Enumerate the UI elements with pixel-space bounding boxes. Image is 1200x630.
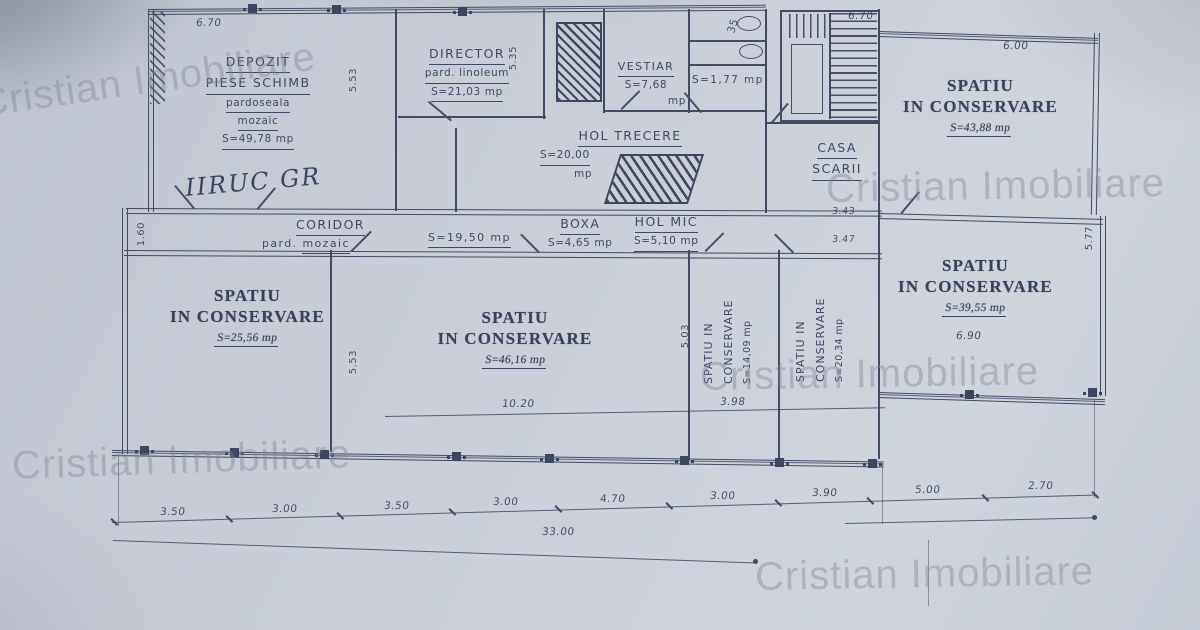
wall-wc-divider2 — [690, 64, 767, 66]
wall-left-room-right — [330, 250, 332, 452]
dim-value: 3.00 — [709, 490, 736, 502]
dim-total-value: 33.00 — [541, 526, 575, 538]
wall-vestiar-left — [603, 9, 605, 113]
door-swing — [520, 234, 540, 254]
dim-value: 6.70 — [195, 17, 222, 29]
dim-value: 3.50 — [159, 506, 186, 518]
dim-value: 3.47 — [831, 234, 856, 245]
watermark: Cristian Imobiliare — [11, 432, 351, 489]
dim-endpoint — [1092, 515, 1097, 520]
dim-value: 3.00 — [271, 503, 298, 515]
room-label-conservare-top-right: SPATIU IN CONSERVARE S=43,88 mp — [893, 76, 1068, 137]
extension-line — [882, 464, 883, 524]
wall-narrow1-left — [688, 250, 690, 460]
extension-line — [1094, 400, 1095, 498]
column — [680, 456, 689, 465]
dim-value: 5.00 — [914, 484, 941, 496]
column — [775, 458, 784, 467]
wall-director-right — [543, 9, 545, 119]
room-label-conservare-left: SPATIU IN CONSERVARE S=25,56 mp — [160, 286, 335, 347]
wall-stairs-bottom — [767, 122, 880, 124]
dim-value-vertical: 5.35 — [508, 46, 519, 70]
dim-value: 6.90 — [955, 330, 982, 342]
wall-rightblock-divider — [878, 213, 1103, 225]
stair-flight — [789, 14, 829, 38]
wall-director-bottom — [398, 116, 546, 118]
dim-value-vertical: 1.60 — [136, 222, 147, 246]
watermark: Cristian Imobiliare — [755, 549, 1095, 600]
dim-value: 6.00 — [1002, 40, 1029, 52]
room-label-hol-trecere: HOL TRECERE S=20,00 mp — [540, 126, 720, 182]
room-label-wc: S=1,77 mp — [692, 72, 764, 88]
watermark: Cristian Imobiliare — [700, 349, 1040, 400]
stair-landing — [791, 44, 823, 114]
column — [545, 454, 554, 463]
room-label-vestiar: VESTIAR S=7,68 mp — [606, 58, 686, 110]
dim-value: 35 — [725, 17, 741, 34]
column — [452, 452, 461, 461]
room-label-boxa: BOXA S=4,65 mp — [548, 214, 612, 252]
room-label-conservare-right: SPATIU IN CONSERVARE S=39,55 mp — [888, 256, 1063, 317]
room-label-hol-mic: HOL MIC S=5,10 mp — [634, 212, 698, 252]
dim-value: 3.90 — [811, 487, 838, 499]
column — [458, 7, 467, 16]
wall-wc-divider1 — [690, 40, 767, 42]
outer-wall-top — [148, 5, 766, 15]
stair-steps — [829, 13, 877, 119]
dim-value: 6.70 — [847, 10, 874, 22]
dim-value: 3.00 — [492, 496, 519, 508]
wall-corridor-bottom — [124, 250, 882, 259]
wall-depozit-right — [395, 9, 397, 211]
outer-wall-left-lower — [122, 208, 128, 454]
toilet-icon — [737, 16, 761, 31]
door-swing — [705, 232, 725, 252]
dim-value-vertical: 5.77 — [1084, 226, 1095, 250]
room-label-coridor-floor: pard. mozaic — [262, 235, 350, 254]
elevator-shaft — [556, 22, 602, 102]
dim-value-vertical: 5.03 — [680, 324, 691, 348]
door-swing — [428, 101, 452, 122]
outer-wall-right-lower — [1100, 216, 1106, 396]
wall-corridor-top — [126, 208, 882, 217]
column — [1088, 388, 1097, 397]
dim-value: 3.50 — [383, 500, 410, 512]
column — [868, 459, 877, 468]
room-label-coridor-area: S=19,50 mp — [428, 229, 511, 248]
dim-value-vertical: 5.53 — [348, 350, 359, 374]
dimension-interior-line — [385, 407, 885, 417]
column — [248, 4, 257, 13]
column — [332, 5, 341, 14]
dim-value: 4.70 — [599, 493, 626, 505]
dimension-total-line — [113, 540, 758, 564]
dim-value: 2.70 — [1027, 480, 1054, 492]
room-label-coridor: CORIDOR — [296, 215, 365, 236]
wall-hol-left — [455, 128, 457, 212]
wall-vestiar-bottom — [605, 110, 767, 112]
toilet-icon — [739, 44, 763, 59]
watermark: Cristian Imobiliare — [826, 161, 1166, 212]
wall-stairs-left — [765, 9, 767, 213]
handwritten-note: IIRUC GR — [184, 162, 322, 202]
outer-wall-top-right — [878, 31, 1098, 44]
dim-value-vertical: 5.53 — [348, 68, 359, 92]
staircase — [780, 10, 880, 122]
scanned-floor-plan: DEPOZIT PIESE SCHIMB pardoseala mozaic S… — [0, 0, 1200, 630]
room-label-conservare-center: SPATIU IN CONSERVARE S=46,16 mp — [425, 308, 605, 369]
dim-value: 10.20 — [501, 398, 535, 410]
